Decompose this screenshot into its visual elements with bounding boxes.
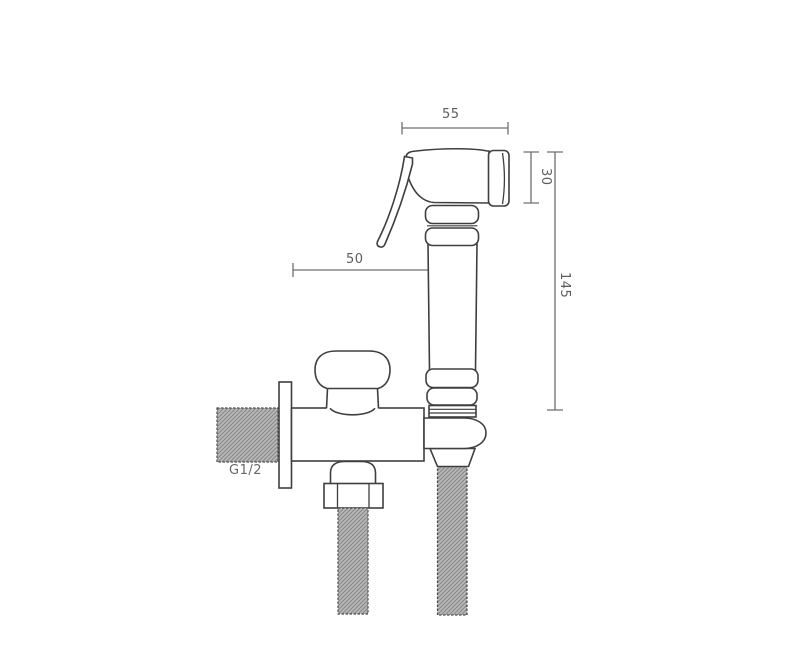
technical-drawing-canvas: 55 30 145 50 G1/2 [0,0,800,667]
dim-head-width-label: 55 [442,107,460,122]
spray-face-cap [489,151,510,207]
dim-sprayer-height-label: 145 [557,272,572,298]
hose-connector [430,449,475,467]
hose-left [338,508,368,614]
control-knob [315,351,390,389]
outlet-shoulder [331,462,376,485]
hex-nut [324,484,383,509]
holder-cup [424,418,486,449]
dim-offset-label: 50 [346,252,364,267]
hand-sprayer [377,149,509,615]
wall-pipe-hatched [217,408,278,462]
dim-head-height-line [524,152,540,203]
handle-rib-lower-2 [427,388,477,405]
bidet-sprayer-line-drawing [0,0,800,667]
handle-rib-lower-1 [426,369,478,388]
angle-valve-assembly [217,351,424,614]
neck-rib-1 [426,206,479,224]
sprayer-head [406,149,489,203]
handle-shaft [428,244,477,370]
wall-flange [279,382,292,488]
hose-right [438,466,468,615]
trigger-lever [377,157,412,248]
dim-head-width-line [402,122,508,135]
neck-rib-2 [426,228,479,246]
dim-head-height-label: 30 [538,168,553,186]
handle-ring-stack [429,406,476,418]
valve-body [292,408,425,461]
knob-neck [327,389,379,409]
thread-size-label: G1/2 [229,463,262,478]
